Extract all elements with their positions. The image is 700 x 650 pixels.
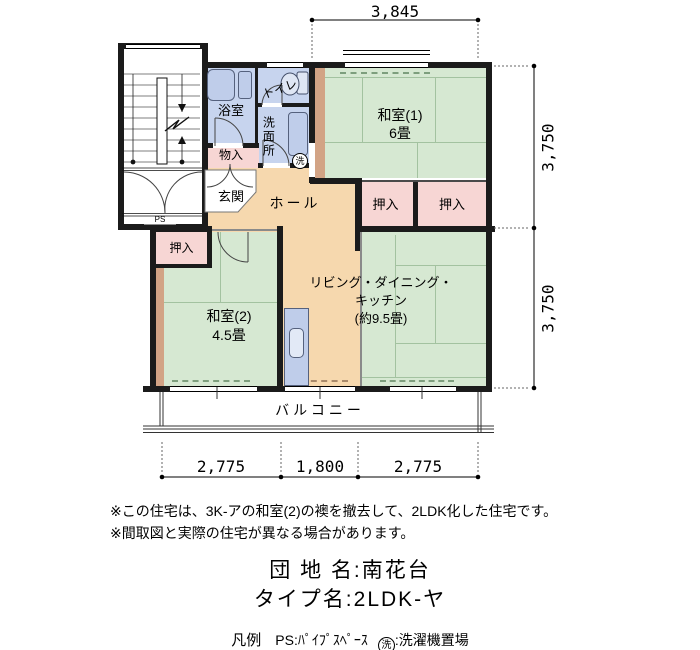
label-balcony: バルコニー xyxy=(240,402,400,419)
danchi-name: 団 地 名:南花台 xyxy=(0,554,700,584)
dim-bottom-left: 2,775 xyxy=(186,457,256,476)
label-washitsu2-name: 和室(2) xyxy=(164,308,294,325)
dimension-top xyxy=(310,18,481,58)
label-bath: 浴室 xyxy=(203,103,259,119)
legend-ps: PS:ﾊﾟｲﾌﾟｽﾍﾟｰｽ xyxy=(275,632,368,648)
legend: 凡例PS:ﾊﾟｲﾌﾟｽﾍﾟｰｽ洗:洗濯機置場 xyxy=(0,629,700,650)
legend-title: 凡例 xyxy=(231,632,261,649)
laundry-mark-icon: 洗 xyxy=(378,637,395,650)
label-oshiire-3: 押入 xyxy=(156,241,207,255)
label-ps: PS xyxy=(146,215,174,225)
dim-bottom-center: 1,800 xyxy=(285,457,355,476)
legend-laundry: :洗濯機置場 xyxy=(395,632,469,648)
notes-block: ※この住宅は、3K-アの和室(2)の襖を撤去して、2LDK化した住宅です。 ※間… xyxy=(110,501,630,544)
label-ldk-line3: (約9.5畳) xyxy=(289,311,473,327)
label-oshiire-2: 押入 xyxy=(418,197,486,213)
label-hall: ホール xyxy=(262,195,328,212)
label-monoire: 物入 xyxy=(203,148,259,162)
label-washitsu1-size: 6畳 xyxy=(335,125,465,142)
dim-bottom-right: 2,775 xyxy=(383,457,453,476)
laundry-mark-icon: 洗 xyxy=(292,153,308,169)
note-line-1: ※この住宅は、3K-アの和室(2)の襖を撤去して、2LDK化した住宅です。 xyxy=(110,501,630,523)
label-washitsu2-size: 4.5畳 xyxy=(164,327,294,344)
label-washitsu1-name: 和室(1) xyxy=(335,107,465,124)
dim-right-lower: 3,750 xyxy=(538,274,557,344)
dim-right-upper: 3,750 xyxy=(538,113,557,183)
type-name: タイプ名:2LDK-ヤ xyxy=(0,583,700,613)
label-genkan: 玄関 xyxy=(204,189,258,205)
stairs xyxy=(122,74,202,225)
label-ldk-line2: キッチン xyxy=(289,293,473,309)
dim-top: 3,845 xyxy=(350,2,440,21)
label-washroom: 洗面所 xyxy=(261,108,275,166)
label-ldk-line1: リビング・ダイニング・ xyxy=(289,275,473,291)
label-oshiire-1: 押入 xyxy=(358,197,413,213)
floor-plan-page: 浴室 トイレ 洗面所 物入 玄関 ホール 和室(1) 6畳 押入 押入 押入 和… xyxy=(0,0,700,650)
dimension-right xyxy=(494,64,536,391)
note-line-2: ※間取図と実際の住宅が異なる場合があります。 xyxy=(110,523,630,545)
